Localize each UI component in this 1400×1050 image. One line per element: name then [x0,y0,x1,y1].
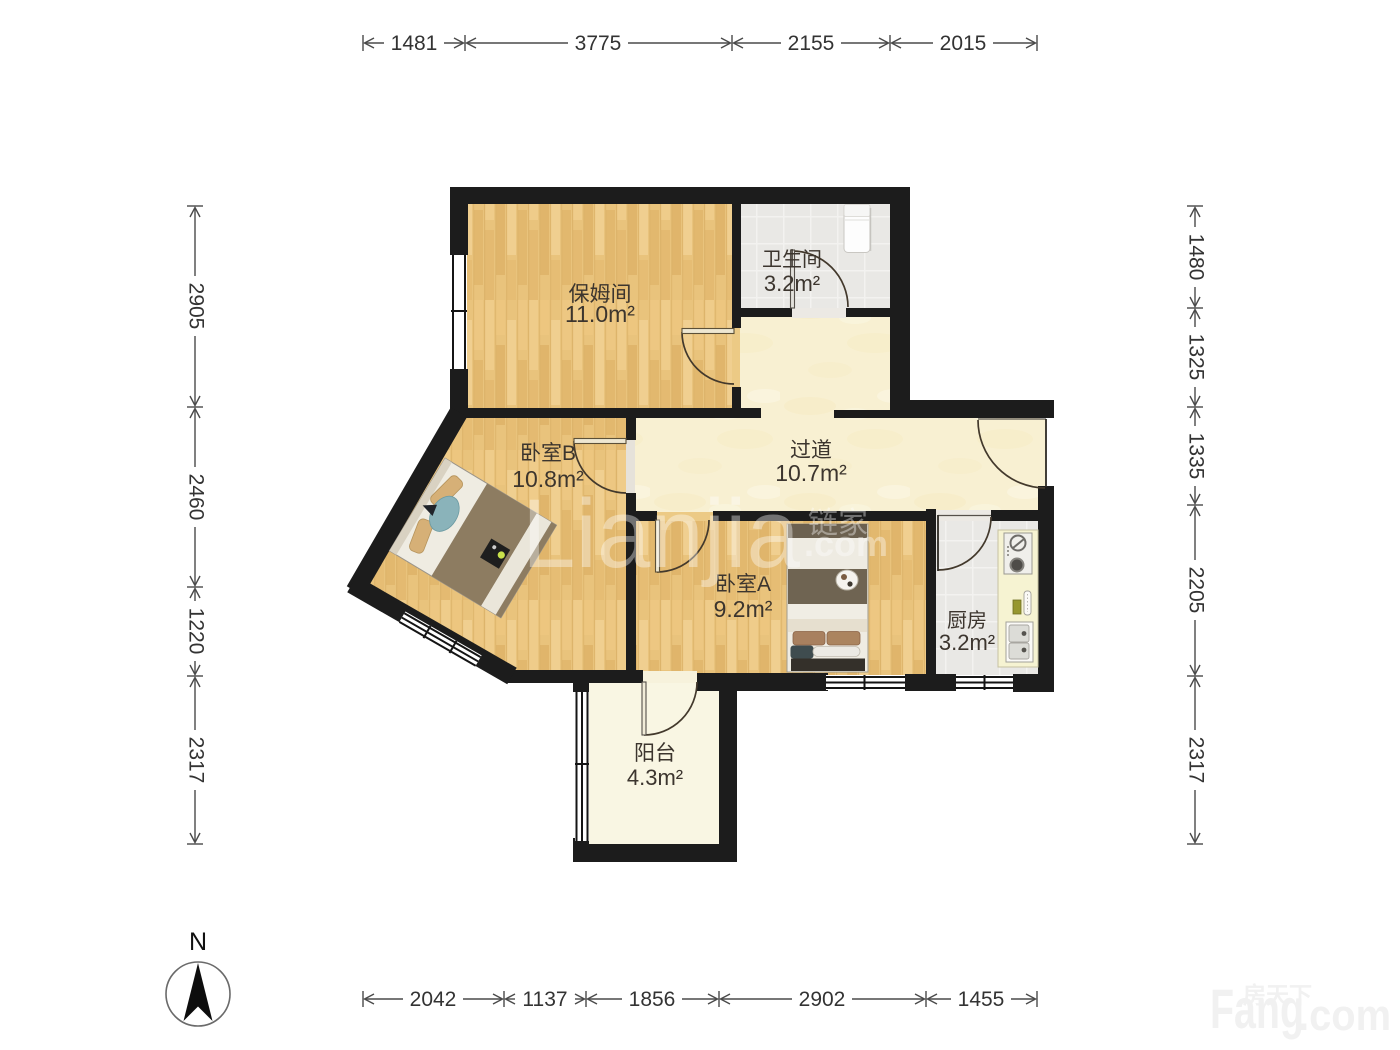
svg-text:1455: 1455 [958,988,1005,1011]
svg-text:卫生间: 卫生间 [762,248,822,271]
svg-text:.com: .com [1298,991,1391,1040]
svg-text:厨房: 厨房 [947,609,987,632]
svg-text:N: N [189,928,207,956]
svg-text:2460: 2460 [184,474,207,521]
svg-text:阳台: 阳台 [634,742,676,765]
svg-text:3.2m²: 3.2m² [764,271,820,296]
svg-text:.com: .com [804,523,888,564]
svg-text:3.2m²: 3.2m² [939,630,995,655]
svg-text:2905: 2905 [184,283,207,330]
svg-text:3775: 3775 [575,32,622,55]
svg-text:2015: 2015 [940,32,987,55]
svg-text:过道: 过道 [790,439,832,462]
svg-text:Fang: Fang [1210,977,1304,1040]
svg-text:11.0m²: 11.0m² [565,301,635,327]
svg-text:4.3m²: 4.3m² [627,765,683,790]
svg-text:1335: 1335 [1184,433,1207,480]
svg-text:1220: 1220 [184,608,207,655]
svg-text:1856: 1856 [629,988,676,1011]
svg-text:2902: 2902 [799,988,846,1011]
svg-text:1137: 1137 [522,988,567,1011]
svg-text:9.2m²: 9.2m² [714,596,773,622]
svg-text:2317: 2317 [184,737,207,784]
svg-text:2155: 2155 [788,32,835,55]
svg-text:1481: 1481 [391,32,438,55]
svg-text:1325: 1325 [1184,334,1207,381]
svg-text:卧室B: 卧室B [520,442,576,465]
svg-text:2317: 2317 [1184,737,1207,784]
svg-text:1480: 1480 [1184,234,1207,281]
svg-text:Lianjia: Lianjia [522,479,800,588]
svg-text:2205: 2205 [1184,567,1207,614]
svg-text:2042: 2042 [410,988,457,1011]
